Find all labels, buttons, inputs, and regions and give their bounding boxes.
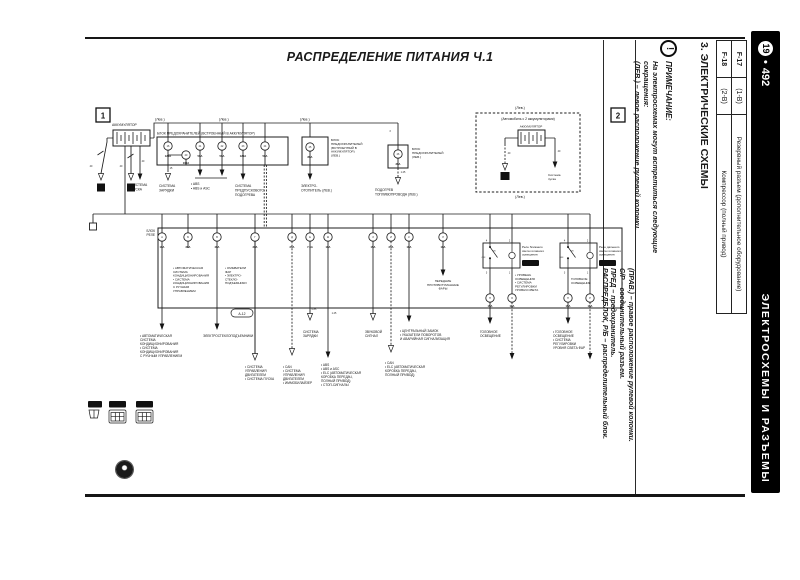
fuse-rating: 15А bbox=[566, 304, 571, 308]
note-heading: ПРИМЕЧАНИЕ: bbox=[664, 61, 673, 121]
low-beam-relay bbox=[483, 243, 520, 268]
diagram-label: СИСТЕМАПРЕДПУСКОВОГОПОДОГРЕВА bbox=[235, 184, 265, 197]
wire-size-label: 40 bbox=[508, 152, 511, 155]
note-lines-second: (ПРАВ.) – правое расположение рулевой ко… bbox=[598, 268, 634, 472]
diagram-label: • CAN• ELC (АВТОМАТИЧЕСКАЯКОРОБКА ПЕРЕДА… bbox=[385, 361, 426, 377]
chapter-number-badge: 19 bbox=[758, 41, 773, 56]
wire-size-label: 1.25 bbox=[401, 171, 406, 174]
generated-annotation-layer: АККУМУЛЯТОР(Лев.)(Лев.)(Лев.)БЛОК ПРЕДОХ… bbox=[88, 106, 625, 408]
diagram-title: РАСПРЕДЕЛЕНИЕ ПИТАНИЯ Ч.1 bbox=[235, 50, 545, 64]
table-cell: F-17 bbox=[732, 41, 747, 78]
fuse-rating: 50А bbox=[220, 154, 225, 158]
connector-pinout-icons bbox=[89, 410, 153, 423]
diagram-label: (Лев.) bbox=[219, 118, 229, 122]
diagram-label: ПОДОГРЕВТОПЛИВОПРОВОДА (ЛЕВ.) bbox=[375, 188, 418, 196]
ground-marker-number: 4 bbox=[100, 186, 103, 191]
wire-size-label: 40 bbox=[120, 165, 123, 168]
diagram-label: ЭЛЕКТРОСТЕКЛОПОДЪЕМНИКИ bbox=[203, 334, 254, 338]
diagram-label: (Лев.) bbox=[515, 195, 525, 199]
fuse-rating: 20А bbox=[389, 245, 394, 249]
wire-size-label: 2 bbox=[587, 240, 589, 243]
table-cell: Компрессор (полный привод) bbox=[717, 115, 732, 314]
wire-size-label: 1 bbox=[587, 272, 589, 275]
fuse-rating: 7.5А bbox=[307, 245, 313, 249]
bottom-rule bbox=[85, 494, 745, 497]
diagram-label: • CAN• СИСТЕМАУПРАВЛЕНИЯДВИГАТЕЛЕМ• ИММО… bbox=[283, 365, 312, 385]
connector-badge-label: А-12 bbox=[91, 403, 98, 407]
wire-size-label: ON bbox=[571, 251, 575, 253]
note-block: ! ПРИМЕЧАНИЕ: На электросхемах могут вст… bbox=[632, 40, 676, 470]
wire-size-label: 40 bbox=[142, 160, 145, 163]
table-cell: Резервный разъем (дополнительное оборудо… bbox=[732, 115, 747, 314]
fuse-rating: 15А bbox=[488, 304, 493, 308]
diagram-label: Системапуска bbox=[548, 173, 561, 181]
table-cell: (2-B) bbox=[717, 78, 732, 115]
fuse-rating: 30А bbox=[253, 245, 258, 249]
wire-size-label: 40 bbox=[558, 150, 561, 153]
fuse-rating: 15А bbox=[371, 245, 376, 249]
diagram-label: (Лев.) bbox=[515, 106, 525, 110]
page-number-value: 492 bbox=[760, 68, 772, 86]
diagram-label: ЗВУКОВОЙСИГНАЛ bbox=[365, 330, 383, 338]
section-marker-number: 1 bbox=[101, 112, 106, 121]
table-cell: (1-B) bbox=[732, 78, 747, 115]
reference-table: F-17(1-B)Резервный разъем (дополнительно… bbox=[716, 40, 747, 314]
diagram-label: (Автомобиль с 2 аккумуляторами) bbox=[501, 117, 555, 121]
fuse-id: И bbox=[390, 236, 392, 239]
fuse-rating: 20А bbox=[186, 245, 191, 249]
heater-fuse-box bbox=[302, 137, 328, 165]
wire-size-label: 1 bbox=[509, 272, 511, 275]
diagram-label: ЭЛЕКТРО-ОТОПИТЕЛЬ (ЛЕВ.) bbox=[301, 184, 332, 192]
note-line: сокращения: bbox=[642, 61, 651, 470]
edge-tab-title: ЭЛЕКТРОСХЕМЫ И РАЗЪЕМЫ bbox=[760, 294, 772, 483]
connector-icon-a230 bbox=[136, 410, 153, 423]
diagram-label: (Лев.) bbox=[300, 118, 310, 122]
wire-size-label: 40 bbox=[90, 165, 93, 168]
note-line: РАСПРЕДБЛОК, Р/Б – распределительный бло… bbox=[599, 268, 608, 472]
fuse-rating: 20А bbox=[290, 245, 295, 249]
diagram-label: АККУМУЛЯТОР bbox=[520, 125, 543, 129]
fuse-rating: 10А bbox=[326, 245, 331, 249]
diagram-label: • АВТОМАТИЧЕСКАЯСИСТЕМАКОНДИЦИОНИРОВАНИЯ… bbox=[140, 334, 182, 358]
battery-symbol-main bbox=[113, 130, 150, 146]
wire-size-label: 4 bbox=[486, 240, 488, 243]
wire-size-label: 15 bbox=[170, 167, 173, 170]
wire-size-label: 2 bbox=[509, 240, 511, 243]
connector-ref-label: А-12 bbox=[238, 312, 245, 316]
diagram-label: • ABS• ABS и ASC bbox=[191, 182, 211, 190]
connector-badge-label: А-218 bbox=[603, 261, 612, 265]
wire-size-label: OFF bbox=[560, 257, 565, 259]
fuse-rating: 50А bbox=[198, 154, 203, 158]
note-line: На электросхемах могут встретиться следу… bbox=[651, 61, 660, 470]
note-header: ! ПРИМЕЧАНИЕ: bbox=[661, 40, 676, 470]
connector-badge-label: А-230 bbox=[140, 403, 149, 407]
diagram-label: СИСТЕМАЗАРЯДКИ bbox=[159, 184, 176, 192]
diagram-label: БЛОКРЕЛЕ bbox=[146, 229, 155, 237]
diagram-label: • СИСТЕМАУПРАВЛЕНИЯДВИГАТЕЛЕМ• СИСТЕМА П… bbox=[245, 365, 275, 381]
fuse-rating: 120А bbox=[240, 154, 246, 158]
fuse-id: О bbox=[511, 297, 513, 300]
diagram-label: ПЕРЕДНИЕПРОТИВОТУМАННЫЕФАРЫ bbox=[427, 279, 459, 291]
table-row: F-17(1-B)Резервный разъем (дополнительно… bbox=[732, 41, 747, 314]
publisher-logo bbox=[116, 461, 133, 478]
diagram-label: БЛОКПРЕДОХРАНИТЕЛЕЙ(ВСТРОЕННЫЙ ВАККУМУЛЯ… bbox=[331, 138, 362, 158]
fuse-rating: 15А bbox=[588, 304, 593, 308]
reference-table-wrap: F-17(1-B)Резервный разъем (дополнительно… bbox=[716, 40, 747, 306]
diagram-label: (Лев.) bbox=[155, 118, 165, 122]
note-line: (ПРАВ.) – правое расположение рулевой ко… bbox=[625, 268, 634, 472]
top-rule bbox=[85, 37, 745, 39]
fuse-rating: 10А bbox=[407, 245, 412, 249]
chapter-heading: 3. ЭЛЕКТРИЧЕСКИЕ СХЕМЫ bbox=[688, 42, 710, 202]
diagram-label: • УРОВЕНЬОСВЕЩЕНИЯ• СИСТЕМАРЕГУЛИРОВКИУР… bbox=[515, 273, 538, 292]
table-row: F-18(2-B)Компрессор (полный привод) bbox=[717, 41, 732, 314]
ground-marker-number: 3 bbox=[130, 186, 133, 191]
section-marker-number: 2 bbox=[616, 112, 621, 121]
diagram-label: Реле дальнегосвета головногоосвещения bbox=[599, 245, 622, 257]
diagram-label: • АВТОМАТИЧЕСКАЯСИСТЕМАКОНДИЦИОНИРОВАНИЯ… bbox=[173, 266, 209, 293]
fuse-rating: 10А bbox=[160, 245, 165, 249]
diagram-label: • ЦЕНТРАЛЬНЫЙ ЗАМОК• УКАЗАТЕЛИ ПОВОРОТОВ… bbox=[400, 329, 451, 341]
wire-size-label: ON bbox=[493, 251, 497, 253]
fuse-rating: 30А bbox=[396, 162, 401, 166]
page-number: 19 • 492 bbox=[758, 41, 773, 86]
wire-size-label: 3 bbox=[389, 130, 391, 133]
note-line: ПРЕД – предохранитель. bbox=[608, 268, 617, 472]
fuse-rating: 40А bbox=[215, 245, 220, 249]
edge-tab: 19 • 492 ЭЛЕКТРОСХЕМЫ И РАЗЪЕМЫ bbox=[751, 31, 780, 493]
scanned-manual-page: РАСПРЕДЕЛЕНИЕ ПИТАНИЯ Ч.1 bbox=[0, 0, 800, 580]
connector-badge-label: А-220 bbox=[526, 261, 535, 265]
fuse-rating: 50А bbox=[263, 154, 268, 158]
high-beam-relay bbox=[560, 243, 597, 268]
battery-fuse-box bbox=[157, 137, 288, 165]
wire-size-label: 4 bbox=[564, 240, 566, 243]
connector-badge-label: А-220 bbox=[113, 403, 122, 407]
fuse-rating: 10А bbox=[510, 304, 515, 308]
table-cell: F-18 bbox=[717, 41, 732, 78]
diagram-label: Реле ближнегосвета головногоосвещения bbox=[522, 245, 545, 257]
diagram-label: • ОМЫВАТЕЛИФАР• ЭЛЕКТРО-СТЕКЛО-ПОДЪЕМНИК… bbox=[225, 266, 247, 285]
diagram-label: ГОЛОВНОЕОСВЕЩЕНИЕ bbox=[480, 330, 501, 338]
connector-icon-a220 bbox=[109, 410, 126, 423]
wire-size-label: 1.25 bbox=[332, 312, 337, 315]
fuse-id: П bbox=[567, 297, 569, 300]
note-lines-first: На электросхемах могут встретиться следу… bbox=[632, 40, 660, 470]
diagram-label: • ABS• ABS и ASC• ELC (АВТОМАТИЧЕСКАЯКОР… bbox=[321, 363, 362, 387]
diagram-label: • ГОЛОВНОЕОСВЕЩЕНИЕ• СИСТЕМАРЕГУЛИРОВКИУ… bbox=[553, 330, 585, 350]
note-line: С/Р – соединительный разъем. bbox=[616, 268, 625, 472]
wire-size-label: 0.85 bbox=[312, 308, 317, 311]
fuse-rating: 10А bbox=[441, 245, 446, 249]
diagram-label: ГОЛОВНОЕОСВЕЩЕНИЕ bbox=[571, 277, 591, 285]
fuse-rating: 80А bbox=[308, 155, 313, 159]
diagram-label: БЛОК ПРЕДОХРАНИТЕЛЕЙ (ВСТРОЕННЫЙ В АККУМ… bbox=[157, 132, 255, 136]
page-number-sep: • bbox=[760, 60, 772, 64]
wire-size-label: 3 bbox=[486, 272, 488, 275]
power-distribution-schematic: АККУМУЛЯТОР(Лев.)(Лев.)(Лев.)БЛОК ПРЕДОХ… bbox=[85, 92, 630, 464]
ground-marker-number: 10 bbox=[502, 174, 508, 179]
wire-size-label: 3 bbox=[564, 272, 566, 275]
diagram-label: АККУМУЛЯТОР bbox=[112, 123, 137, 127]
connector-icon-a12 bbox=[89, 410, 99, 418]
fuse-rating: 100А bbox=[183, 161, 189, 165]
diagram-label: БЛОКПРЕДОХРАНИТЕЛЕЙ(ЛЕВ.) bbox=[412, 147, 443, 159]
fuse-rating: 120А bbox=[165, 154, 171, 158]
warning-icon: ! bbox=[660, 40, 677, 57]
diagram-label: СИСТЕМАЗАРЯДКИ bbox=[303, 330, 320, 338]
wire-size-label: OFF bbox=[482, 257, 487, 259]
battery-symbol-second bbox=[518, 130, 545, 146]
fuse-id: Н bbox=[489, 297, 491, 300]
